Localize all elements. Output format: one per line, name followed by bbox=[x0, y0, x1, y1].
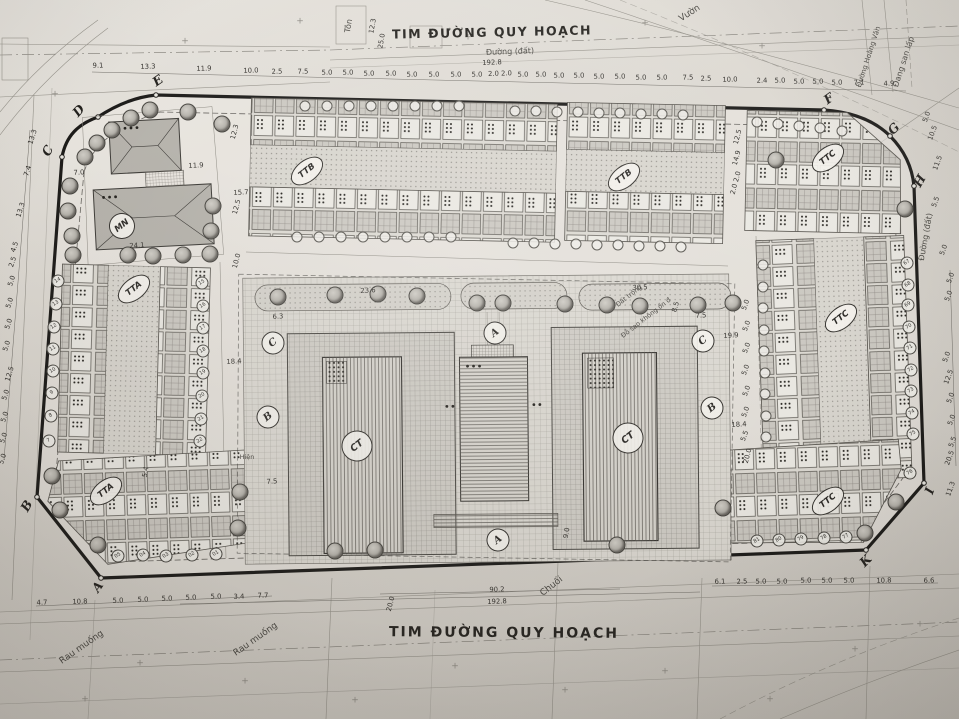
ct-right-building bbox=[551, 326, 699, 549]
planting-strips bbox=[255, 281, 731, 313]
ttb-block-1 bbox=[249, 98, 558, 242]
ttb-block-2 bbox=[565, 102, 726, 243]
site-plan-drawing bbox=[0, 0, 959, 719]
plaza-canopy-strip bbox=[434, 513, 558, 527]
bottom-road-title: TIM ĐƯỜNG QUY HOẠCH bbox=[389, 624, 619, 642]
tta-left-block bbox=[58, 264, 211, 456]
mn-roof-large bbox=[93, 184, 214, 250]
site-plan-photo: 1413121110987151617181920212205040302018… bbox=[0, 0, 959, 719]
ct-left-building bbox=[287, 332, 456, 555]
mn-roof-small bbox=[109, 118, 182, 174]
